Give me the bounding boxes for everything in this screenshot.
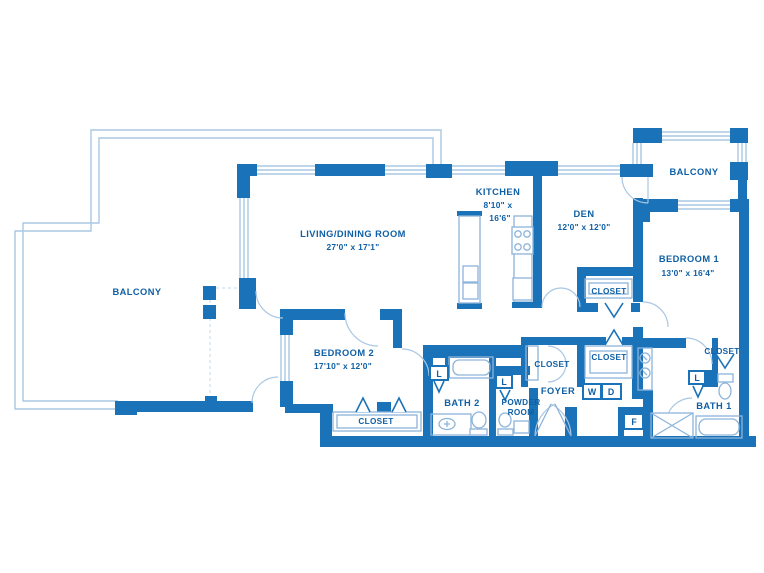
label-f: F [631, 417, 637, 427]
label-closet-foyer: CLOSET [534, 360, 569, 369]
label-den: DEN [574, 209, 595, 219]
label-washer: W [588, 387, 597, 397]
door-living-balcony [256, 291, 283, 318]
label-bedroom1: BEDROOM 1 [659, 254, 719, 264]
door-den-double-left [542, 288, 561, 307]
dims-living-dining: 27'0" x 17'1" [326, 242, 379, 252]
label-powder-2: ROOM [508, 408, 535, 417]
label-living-dining: LIVING/DINING ROOM [300, 229, 406, 239]
floorplan-drawing: LIVING/DINING ROOM 27'0" x 17'1" KITCHEN… [0, 0, 764, 573]
label-foyer: FOYER [541, 386, 575, 396]
stove [512, 227, 533, 254]
label-linen-bath2: L [436, 369, 442, 379]
dims-bedroom1: 13'0" x 16'4" [661, 268, 714, 278]
dims-den: 12'0" x 12'0" [557, 222, 610, 232]
label-closet-den: CLOSET [591, 287, 626, 296]
closet-labels: CLOSET CLOSET CLOSET CLOSET CLOSET [358, 287, 739, 426]
label-powder-1: POWDER [502, 398, 541, 407]
door-bedroom1 [643, 302, 668, 327]
sink-powder [514, 421, 529, 433]
label-kitchen: KITCHEN [476, 187, 520, 197]
label-balcony-left: BALCONY [112, 287, 161, 297]
label-linen-bath1: L [694, 373, 700, 383]
label-closet-hall: CLOSET [591, 353, 626, 362]
label-balcony-right: BALCONY [669, 167, 718, 177]
toilet-bath2 [470, 412, 487, 435]
refrigerator [463, 266, 478, 282]
dims-kitchen-1: 8'10" x [483, 200, 512, 210]
dims-kitchen-2: 16'6" [489, 213, 510, 223]
label-closet-bedroom1: CLOSET [704, 347, 739, 356]
label-bath2: BATH 2 [444, 398, 480, 408]
door-bedroom2 [345, 313, 378, 346]
kitchen-counters [457, 211, 533, 309]
door-bedroom2-balcony [252, 377, 278, 403]
floorplan-page: LIVING/DINING ROOM 27'0" x 17'1" KITCHEN… [0, 0, 764, 573]
label-closet-bedroom2: CLOSET [358, 417, 393, 426]
bathtub-bath2 [449, 357, 493, 378]
shower-bath1 [651, 413, 693, 438]
label-bedroom2: BEDROOM 2 [314, 348, 374, 358]
kitchen-sink-cabinet [513, 278, 532, 300]
balcony-column [203, 286, 216, 300]
toilet-bath1 [718, 374, 733, 399]
door-bath1-inner [668, 398, 692, 414]
label-bath1: BATH 1 [696, 401, 732, 411]
label-linen-powder: L [501, 377, 507, 387]
dims-bedroom2: 17'10" x 12'0" [314, 361, 372, 371]
bathtub-bath1 [696, 416, 742, 438]
label-dryer: D [608, 387, 614, 397]
balcony-column [203, 305, 216, 319]
sink-bath2 [431, 414, 471, 435]
